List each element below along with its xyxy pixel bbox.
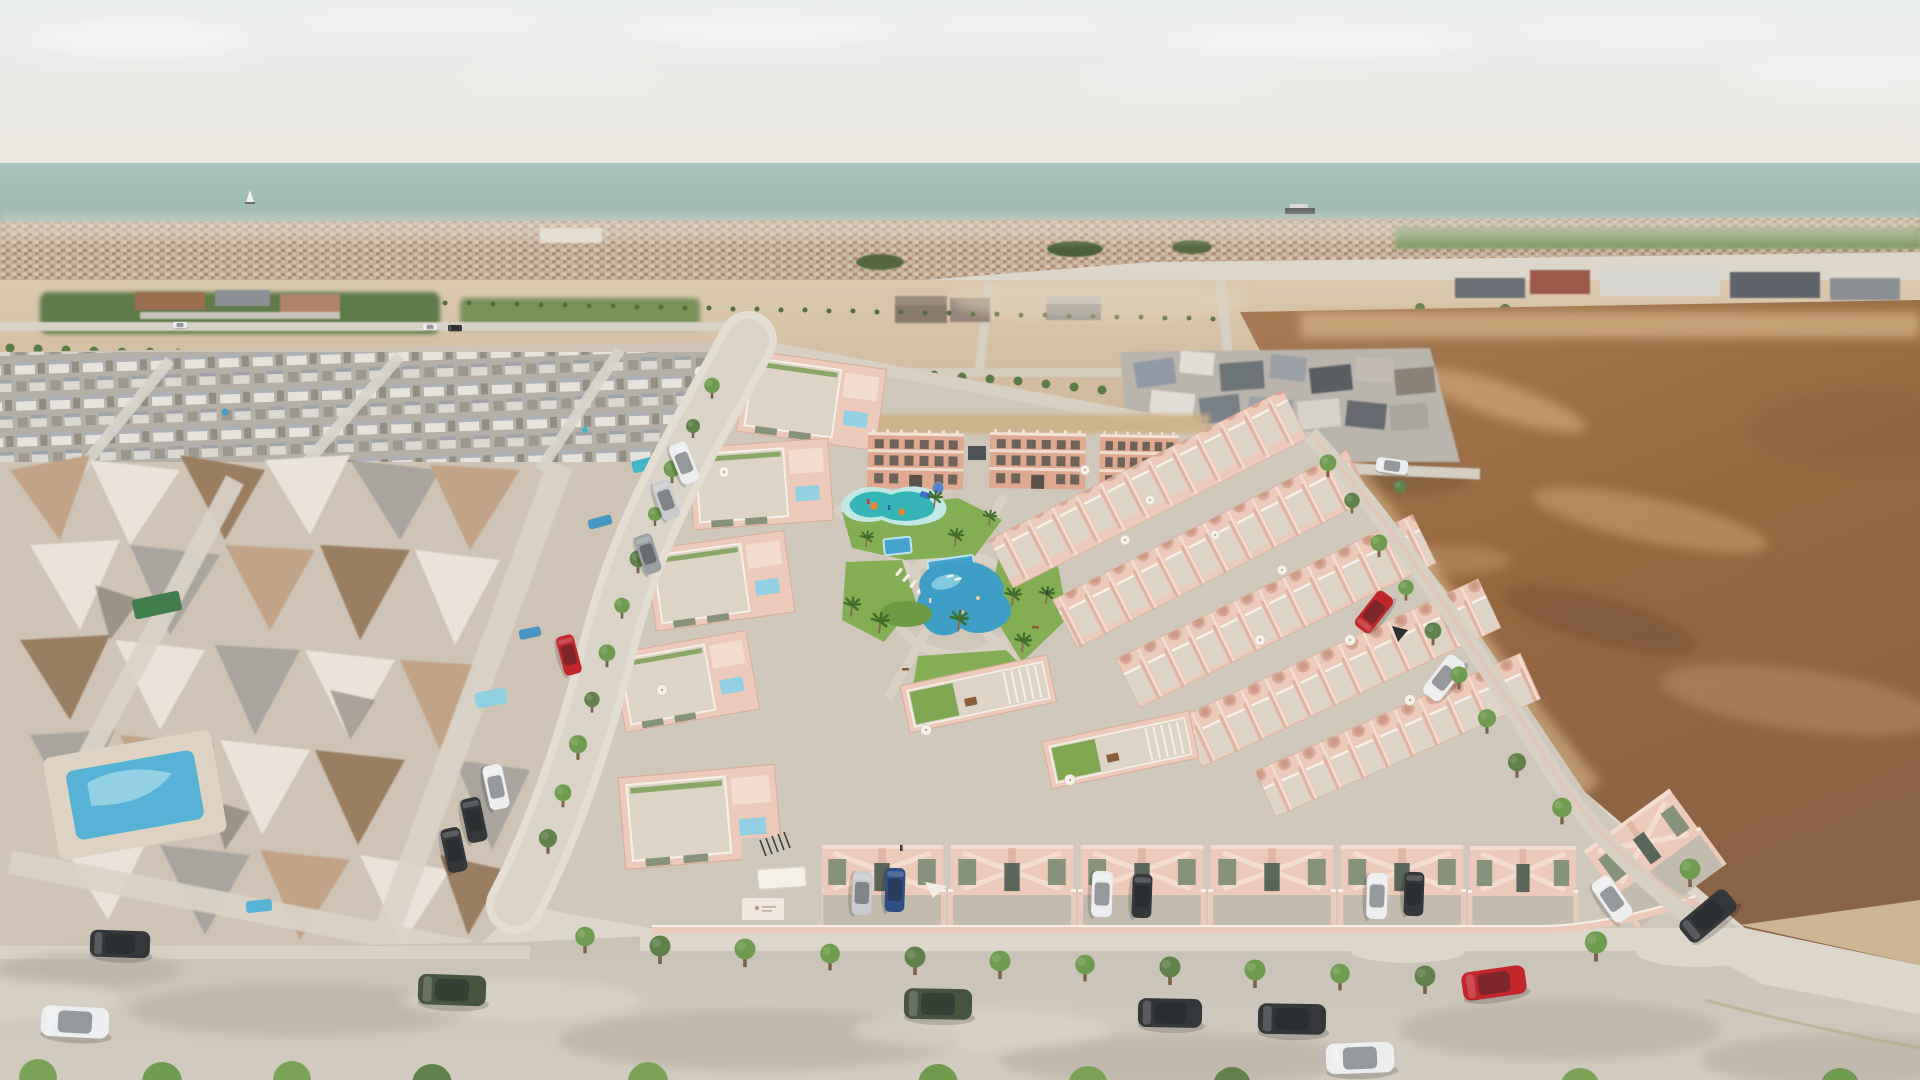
entrance-pergola	[757, 866, 806, 889]
sky	[0, 0, 1920, 182]
planter-island	[880, 601, 932, 627]
apartment-block	[867, 429, 964, 490]
bench	[1032, 626, 1039, 629]
plot-road	[0, 322, 760, 331]
sidewalk	[640, 934, 1705, 951]
entrance-sign	[742, 898, 784, 920]
apartment-block	[989, 429, 1086, 490]
villa-band	[0, 352, 742, 462]
plunge-pool	[883, 537, 912, 556]
person	[900, 845, 903, 851]
swimmer	[976, 596, 980, 600]
bench	[902, 668, 909, 671]
strip-mall	[135, 290, 340, 319]
driveway-car	[880, 868, 905, 915]
umbrella	[719, 467, 730, 478]
aerial-render: Aerial 3D render of a new-build Mediterr…	[0, 0, 1920, 1080]
umbrella	[657, 685, 668, 696]
container	[968, 446, 986, 460]
industrial-buildings	[1455, 266, 1900, 300]
